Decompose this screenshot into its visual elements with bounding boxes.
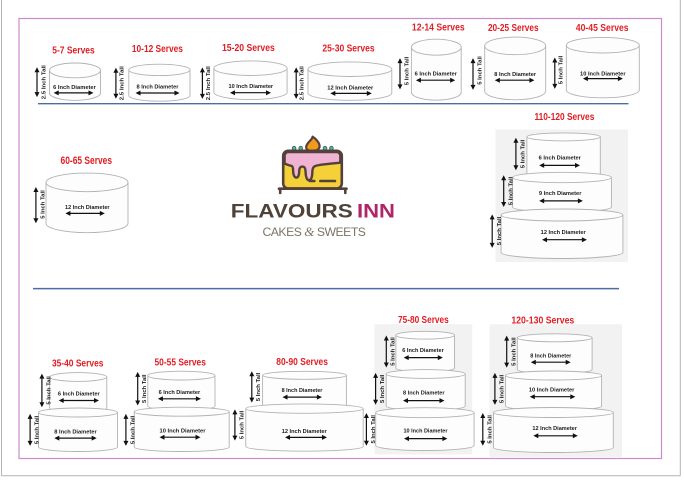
svg-text:8 Inch Diameter: 8 Inch Diameter [530, 353, 572, 359]
svg-text:5 Inch Tall: 5 Inch Tall [511, 337, 517, 366]
svg-text:5 Inch Tall: 5 Inch Tall [404, 56, 410, 85]
svg-text:5 Inch Tall: 5 Inch Tall [380, 374, 386, 403]
svg-text:8 Inch Diameter: 8 Inch Diameter [137, 84, 180, 90]
svg-text:5 Inch Tall: 5 Inch Tall [256, 372, 262, 401]
svg-text:50-55 Serves: 50-55 Serves [155, 358, 207, 369]
svg-text:5 Inch Tall: 5 Inch Tall [500, 374, 506, 403]
svg-text:20-25 Serves: 20-25 Serves [488, 23, 539, 34]
svg-text:5 Inch Tall: 5 Inch Tall [142, 374, 148, 403]
svg-text:12 Inch Diameter: 12 Inch Diameter [532, 426, 577, 432]
svg-text:5 Inch Tall: 5 Inch Tall [509, 176, 515, 205]
svg-text:8 Inch Diameter: 8 Inch Diameter [282, 388, 324, 394]
svg-text:9 Inch Diameter: 9 Inch Diameter [539, 191, 582, 197]
svg-text:CAKES & SWEETS: CAKES & SWEETS [262, 224, 366, 239]
svg-text:8 Inch Diameter: 8 Inch Diameter [494, 72, 537, 78]
svg-text:INN: INN [357, 201, 395, 223]
svg-text:5-7 Serves: 5-7 Serves [52, 46, 95, 57]
svg-text:110-120 Serves: 110-120 Serves [534, 112, 594, 123]
svg-text:8 Inch Diameter: 8 Inch Diameter [54, 429, 97, 435]
svg-text:6 Inch Diameter: 6 Inch Diameter [58, 392, 101, 398]
svg-text:5 Inch Tall: 5 Inch Tall [497, 216, 503, 245]
svg-text:5 Inch Tall: 5 Inch Tall [34, 415, 40, 444]
svg-text:40-45 Serves: 40-45 Serves [576, 23, 629, 34]
svg-text:FLAVOURS: FLAVOURS [231, 201, 353, 223]
svg-text:5 Inch Tall: 5 Inch Tall [371, 415, 377, 444]
svg-text:10 Inch Diameter: 10 Inch Diameter [160, 428, 207, 434]
svg-text:5 Inch Tall: 5 Inch Tall [239, 410, 245, 439]
svg-text:5 Inch Tall: 5 Inch Tall [391, 337, 397, 366]
svg-text:2.5 Inch Tall: 2.5 Inch Tall [300, 66, 306, 101]
svg-text:6 Inch Diameter: 6 Inch Diameter [415, 71, 458, 77]
svg-text:80-90 Serves: 80-90 Serves [276, 357, 328, 368]
svg-text:12-14 Serves: 12-14 Serves [412, 22, 465, 33]
svg-text:6 Inch Diameter: 6 Inch Diameter [402, 348, 444, 354]
svg-text:5 Inch Tall: 5 Inch Tall [130, 415, 136, 444]
svg-text:12 Inch Diameter: 12 Inch Diameter [65, 205, 111, 211]
svg-text:5 Inch Tall: 5 Inch Tall [559, 55, 565, 84]
svg-text:120-130 Serves: 120-130 Serves [511, 316, 574, 327]
svg-text:10 Inch Diameter: 10 Inch Diameter [529, 388, 575, 394]
svg-text:12 Inch Diameter: 12 Inch Diameter [327, 85, 374, 91]
svg-text:2.5 Inch Tall: 2.5 Inch Tall [42, 65, 48, 100]
svg-text:12 Inch Diameter: 12 Inch Diameter [541, 230, 587, 236]
svg-text:2.5 Inch Tall: 2.5 Inch Tall [119, 66, 125, 101]
svg-text:35-40 Serves: 35-40 Serves [52, 359, 104, 370]
svg-text:12 Inch Diameter: 12 Inch Diameter [282, 429, 328, 435]
svg-text:6 Inch Diameter: 6 Inch Diameter [53, 85, 97, 91]
svg-text:5 Inch Tall: 5 Inch Tall [46, 376, 52, 405]
svg-text:5 Inch Tall: 5 Inch Tall [40, 190, 46, 219]
svg-text:2.5 Inch Tall: 2.5 Inch Tall [206, 66, 212, 101]
svg-text:5 Inch Tall: 5 Inch Tall [520, 139, 526, 168]
svg-text:10 Inch Diameter: 10 Inch Diameter [404, 428, 449, 434]
svg-text:5 Inch Tall: 5 Inch Tall [477, 56, 483, 85]
svg-text:6 Inch Diameter: 6 Inch Diameter [159, 390, 201, 396]
svg-text:25-30 Serves: 25-30 Serves [322, 44, 374, 55]
svg-text:10 Inch Diameter: 10 Inch Diameter [229, 84, 275, 90]
svg-text:8 Inch Diameter: 8 Inch Diameter [403, 391, 445, 397]
svg-text:6 Inch Diameter: 6 Inch Diameter [539, 155, 582, 161]
svg-text:75-80 Serves: 75-80 Serves [398, 315, 449, 326]
svg-text:10-12 Serves: 10-12 Serves [132, 44, 183, 55]
svg-text:60-65 Serves: 60-65 Serves [61, 155, 113, 167]
svg-text:15-20 Serves: 15-20 Serves [222, 43, 275, 54]
svg-text:5 Inch Tall: 5 Inch Tall [488, 415, 494, 444]
